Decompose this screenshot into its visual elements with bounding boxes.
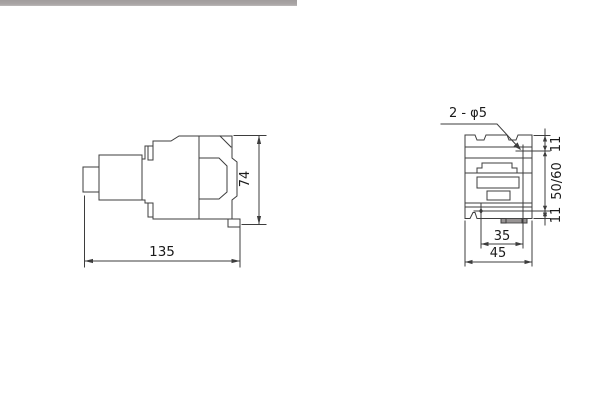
side-view-top-edge bbox=[153, 136, 232, 146]
drawing-linework bbox=[0, 0, 600, 400]
arrowhead bbox=[257, 136, 261, 145]
arrowhead bbox=[543, 151, 547, 156]
front-view-raised-tab bbox=[477, 163, 517, 173]
front-view-outline bbox=[465, 135, 532, 223]
dim-label-11-bottom: 11 bbox=[549, 200, 565, 230]
arrowhead bbox=[257, 216, 261, 225]
side-view-top-terminal bbox=[148, 146, 153, 160]
arrowhead bbox=[525, 260, 533, 264]
side-view-end-cap bbox=[83, 167, 99, 192]
front-view-window-small bbox=[487, 191, 510, 200]
arrowhead bbox=[465, 260, 473, 264]
arrowhead bbox=[543, 136, 547, 142]
side-view-foot bbox=[228, 219, 240, 227]
arrowhead bbox=[232, 259, 241, 263]
front-view-window-large bbox=[477, 177, 519, 188]
side-view-back-edge bbox=[232, 136, 237, 219]
side-view-top-step bbox=[142, 146, 148, 159]
leader-line bbox=[441, 124, 520, 149]
dim-label-45: 45 bbox=[478, 246, 518, 262]
front-view-bottom-edge bbox=[465, 213, 532, 219]
side-view-corner-chamfer bbox=[220, 136, 231, 147]
arrowhead bbox=[85, 259, 94, 263]
divider-bar bbox=[0, 0, 297, 6]
side-view-bottom-step bbox=[142, 200, 148, 203]
dim-label-35: 35 bbox=[482, 229, 522, 245]
dim-label-11-top: 11 bbox=[549, 129, 565, 159]
side-view-bottom-edge bbox=[153, 217, 228, 219]
dim-label-135: 135 bbox=[137, 244, 187, 260]
side-view-front-block bbox=[99, 155, 142, 200]
front-view-top-edge bbox=[465, 135, 532, 140]
arrowhead bbox=[543, 146, 547, 151]
dim-label-50-60: 50/60 bbox=[550, 156, 566, 206]
arrowhead bbox=[543, 206, 547, 211]
hole-center-mark bbox=[479, 208, 483, 214]
technical-drawing-page: 135 74 2 - φ5 11 50/60 11 35 45 bbox=[0, 0, 600, 400]
side-view-bottom-terminal bbox=[148, 203, 153, 217]
side-view-outline bbox=[83, 136, 240, 227]
hole-callout-label: 2 - φ5 bbox=[436, 106, 500, 122]
dim-label-74: 74 bbox=[238, 164, 254, 194]
side-view-din-groove bbox=[199, 158, 227, 199]
